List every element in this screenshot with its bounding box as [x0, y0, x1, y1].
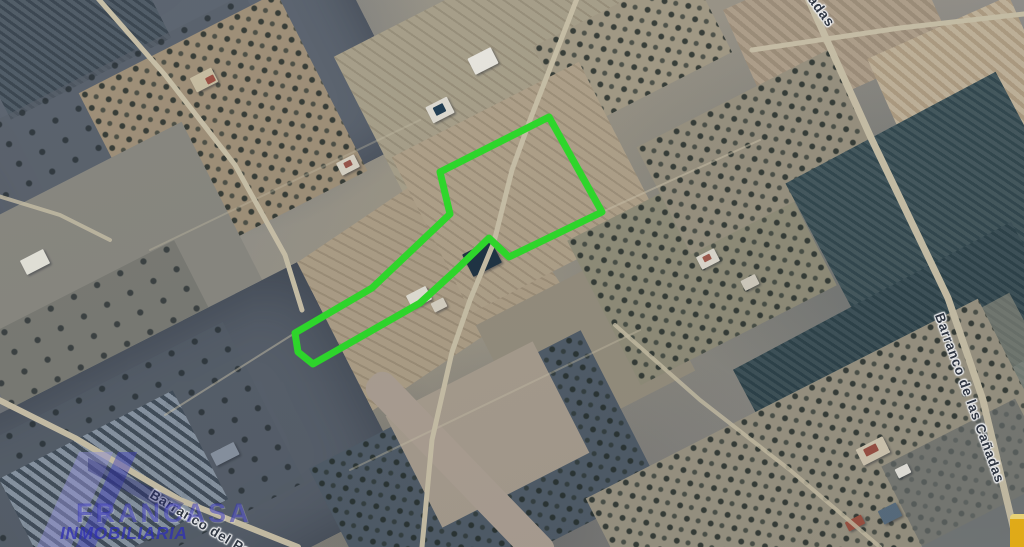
aerial-map-view[interactable]: adas Barranco de las Cañadas Barranco de… — [0, 0, 1024, 547]
map-overlay — [0, 0, 1024, 547]
roads-layer — [0, 0, 1024, 547]
map-corner-marker — [1010, 514, 1024, 547]
parcel-outline — [295, 117, 602, 364]
